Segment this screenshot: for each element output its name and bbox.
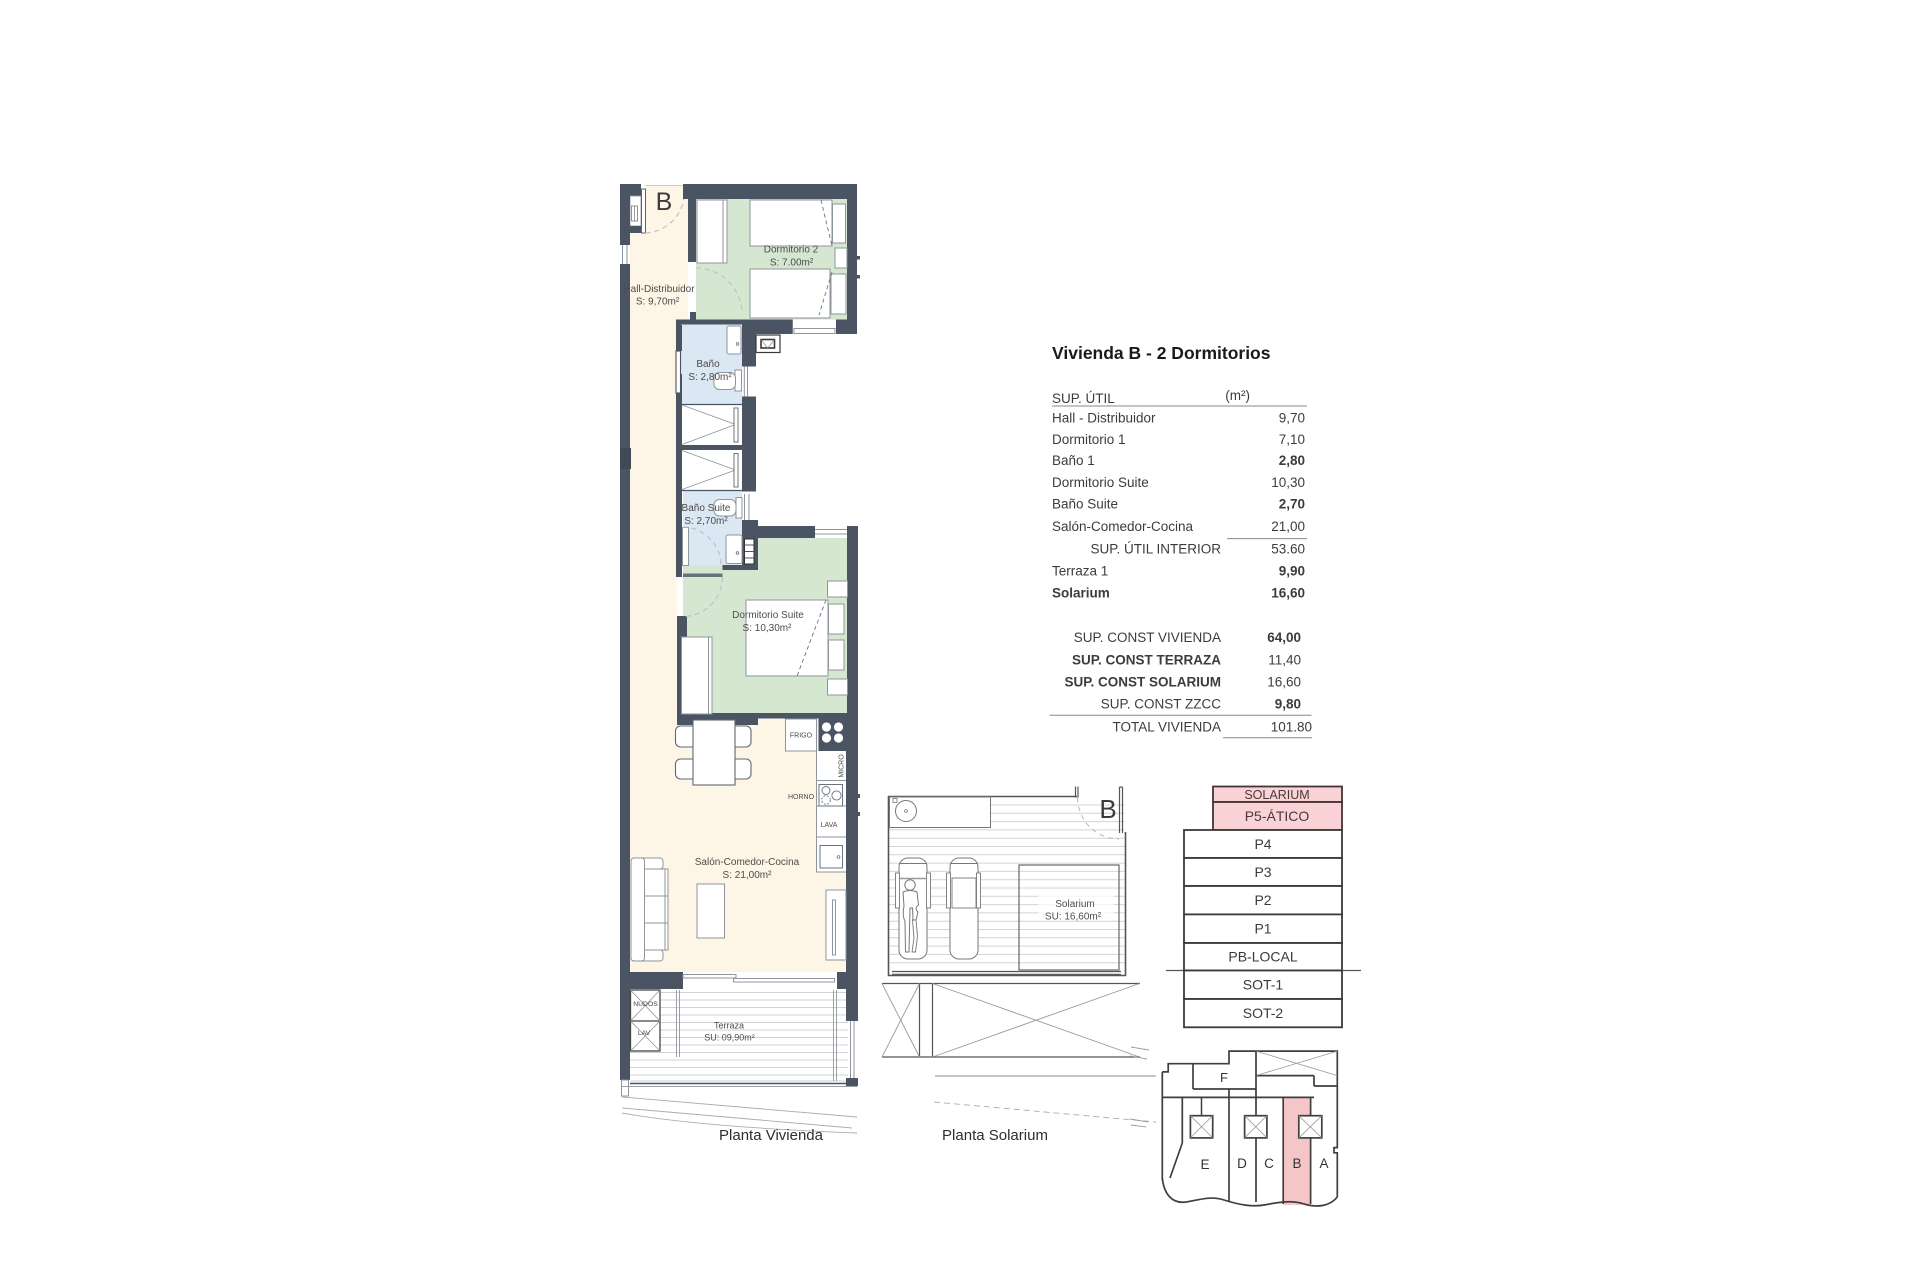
svg-text:Dormitorio 1: Dormitorio 1 xyxy=(1052,432,1126,447)
svg-text:Dormitorio 2: Dormitorio 2 xyxy=(764,245,819,256)
svg-text:SOT-2: SOT-2 xyxy=(1243,1005,1284,1021)
svg-text:Dormitorio Suite: Dormitorio Suite xyxy=(732,610,804,621)
svg-text:SUP. CONST VIVIENDA: SUP. CONST VIVIENDA xyxy=(1074,630,1221,645)
svg-text:9,80: 9,80 xyxy=(1275,697,1301,712)
svg-text:LAV: LAV xyxy=(638,1030,651,1037)
svg-text:P2: P2 xyxy=(1254,892,1271,908)
svg-text:PB-LOCAL: PB-LOCAL xyxy=(1228,949,1297,965)
svg-text:SU: 16,60m²: SU: 16,60m² xyxy=(1045,912,1102,923)
svg-text:C: C xyxy=(1264,1156,1274,1171)
svg-text:P4: P4 xyxy=(1254,836,1271,852)
svg-text:11,40: 11,40 xyxy=(1268,653,1301,668)
svg-text:B: B xyxy=(1099,794,1116,824)
svg-text:53.60: 53.60 xyxy=(1271,542,1305,557)
svg-text:21,00: 21,00 xyxy=(1271,519,1305,534)
svg-text:Baño Suite: Baño Suite xyxy=(1052,497,1118,512)
svg-text:7,10: 7,10 xyxy=(1279,432,1305,447)
svg-text:Terraza: Terraza xyxy=(714,1021,744,1031)
svg-text:A: A xyxy=(1319,1156,1328,1171)
svg-text:101.80: 101.80 xyxy=(1271,720,1312,735)
svg-text:16,60: 16,60 xyxy=(1267,675,1301,690)
svg-text:Baño 1: Baño 1 xyxy=(1052,453,1095,468)
svg-text:Terraza 1: Terraza 1 xyxy=(1052,564,1108,579)
svg-text:9,90: 9,90 xyxy=(1279,564,1305,579)
svg-text:SUP. ÚTIL INTERIOR: SUP. ÚTIL INTERIOR xyxy=(1090,542,1221,557)
svg-text:S: 2,70m²: S: 2,70m² xyxy=(684,516,728,527)
svg-text:Hall-Distribuidor: Hall-Distribuidor xyxy=(623,284,695,295)
svg-text:Dormitorio Suite: Dormitorio Suite xyxy=(1052,475,1149,490)
svg-text:E: E xyxy=(1200,1157,1209,1172)
svg-text:B: B xyxy=(656,188,673,216)
svg-text:2,70: 2,70 xyxy=(1279,497,1305,512)
svg-text:16,60: 16,60 xyxy=(1271,585,1305,600)
svg-text:S: 2,80m²: S: 2,80m² xyxy=(688,372,732,383)
svg-text:2,80: 2,80 xyxy=(1279,453,1305,468)
svg-text:SUP. CONST TERRAZA: SUP. CONST TERRAZA xyxy=(1072,653,1221,668)
svg-text:SUP. CONST SOLARIUM: SUP. CONST SOLARIUM xyxy=(1064,675,1221,690)
svg-text:S: 9,70m²: S: 9,70m² xyxy=(636,297,680,308)
svg-text:SUP. CONST ZZCC: SUP. CONST ZZCC xyxy=(1101,697,1222,712)
svg-text:Vivienda B - 2 Dormitorios: Vivienda B - 2 Dormitorios xyxy=(1052,343,1271,363)
svg-text:Planta Solarium: Planta Solarium xyxy=(942,1127,1048,1144)
svg-text:SOT-1: SOT-1 xyxy=(1243,977,1284,993)
svg-text:Hall - Distribuidor: Hall - Distribuidor xyxy=(1052,411,1156,426)
svg-text:SU: 09,90m²: SU: 09,90m² xyxy=(704,1033,755,1043)
svg-text:MICRO: MICRO xyxy=(839,754,846,778)
svg-text:Solarium: Solarium xyxy=(1052,585,1110,600)
svg-text:P3: P3 xyxy=(1254,864,1271,880)
svg-text:LAVA: LAVA xyxy=(821,822,838,829)
svg-text:D: D xyxy=(1237,1156,1247,1171)
svg-text:Salón-Comedor-Cocina: Salón-Comedor-Cocina xyxy=(695,857,800,868)
svg-text:Planta Vivienda: Planta Vivienda xyxy=(719,1127,824,1144)
svg-text:9,70: 9,70 xyxy=(1279,411,1305,426)
svg-text:(m²): (m²) xyxy=(1225,388,1250,403)
svg-text:S: 10,30m²: S: 10,30m² xyxy=(743,623,793,634)
svg-text:TOTAL VIVIENDA: TOTAL VIVIENDA xyxy=(1112,720,1221,735)
svg-text:S: 7.00m²: S: 7.00m² xyxy=(770,258,814,269)
svg-text:P1: P1 xyxy=(1254,921,1271,937)
svg-text:Baño: Baño xyxy=(696,359,720,370)
svg-text:64,00: 64,00 xyxy=(1267,630,1301,645)
svg-text:Salón-Comedor-Cocina: Salón-Comedor-Cocina xyxy=(1052,519,1194,534)
svg-text:SOLARIUM: SOLARIUM xyxy=(1244,788,1309,802)
svg-text:Baño Suite: Baño Suite xyxy=(682,503,731,514)
svg-text:HORNO: HORNO xyxy=(788,794,815,801)
svg-text:S: 21,00m²: S: 21,00m² xyxy=(723,870,773,881)
svg-text:10,30: 10,30 xyxy=(1271,475,1305,490)
svg-text:NUDOS: NUDOS xyxy=(633,1001,658,1008)
svg-text:F: F xyxy=(1220,1070,1228,1085)
svg-text:FRIGO: FRIGO xyxy=(790,733,813,740)
svg-text:Solarium: Solarium xyxy=(1055,899,1094,910)
svg-text:B: B xyxy=(1292,1156,1301,1171)
svg-text:P5-ÁTICO: P5-ÁTICO xyxy=(1245,808,1310,824)
svg-text:SUP. ÚTIL: SUP. ÚTIL xyxy=(1052,391,1115,406)
